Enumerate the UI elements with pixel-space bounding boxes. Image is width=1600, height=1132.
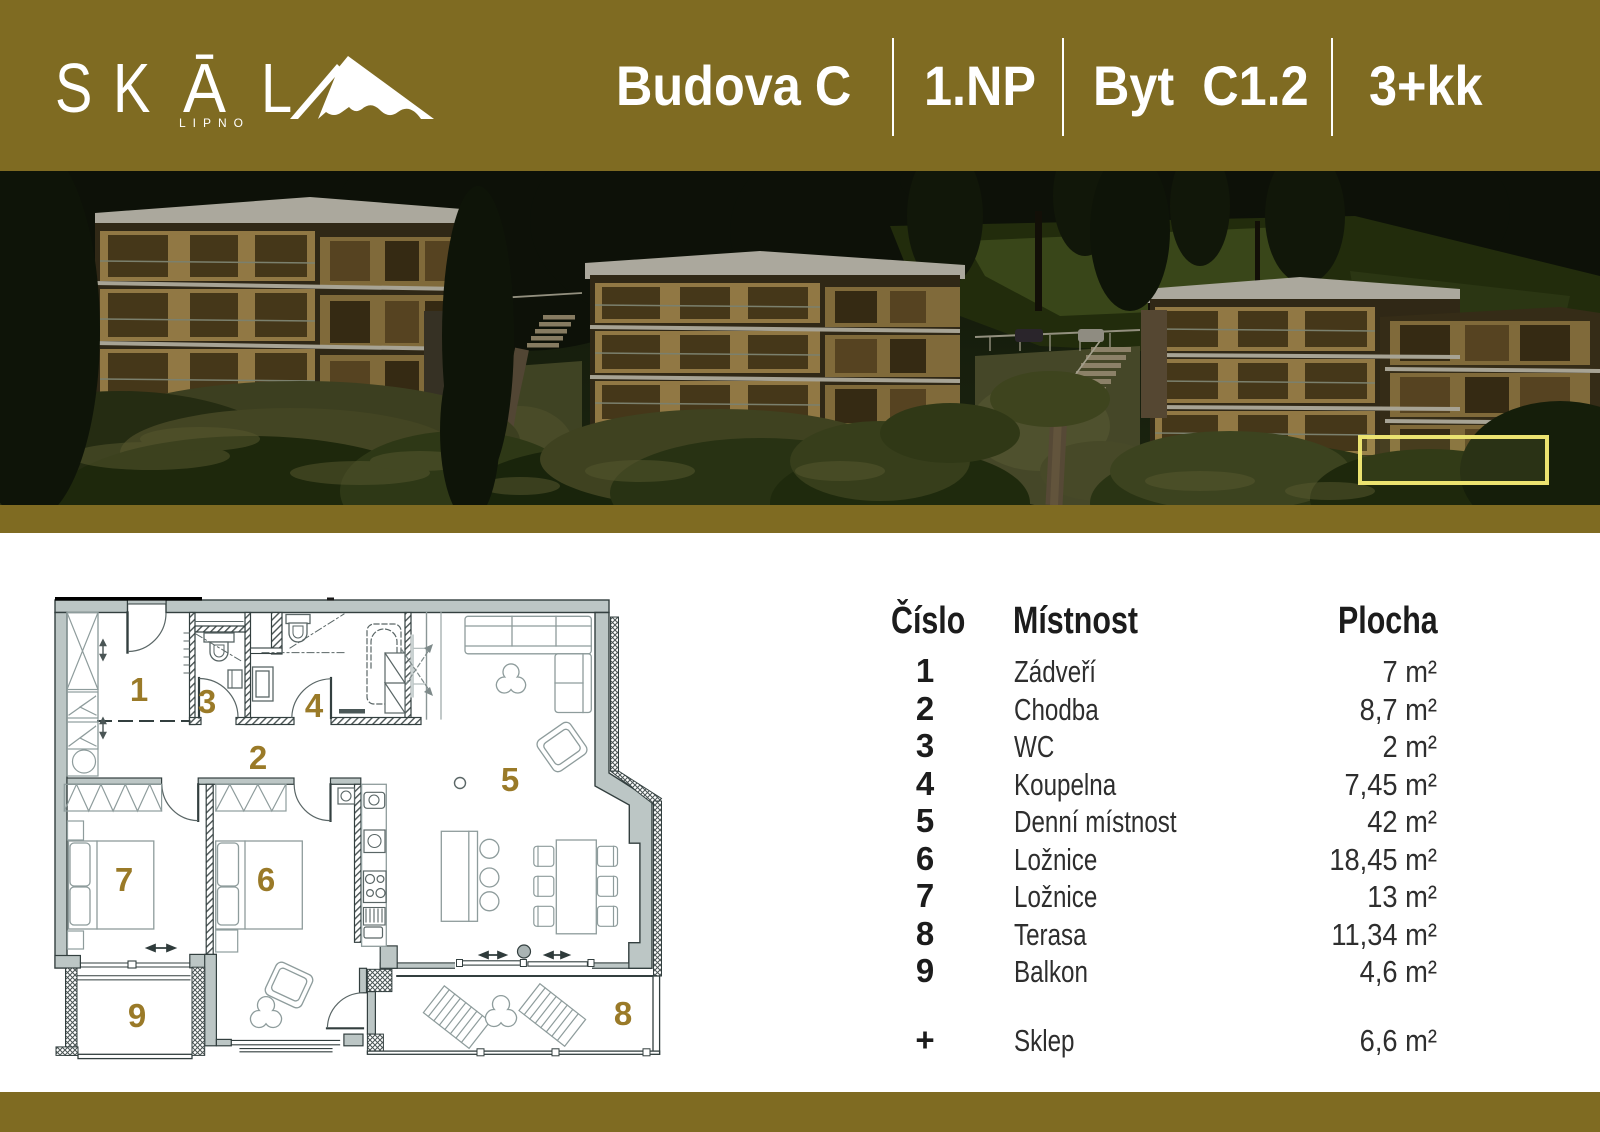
svg-text:1: 1 — [130, 671, 148, 708]
svg-text:8: 8 — [614, 995, 632, 1032]
svg-text:3: 3 — [198, 683, 216, 720]
svg-text:9: 9 — [128, 997, 146, 1034]
svg-text:4: 4 — [305, 687, 324, 724]
svg-text:5: 5 — [501, 761, 519, 798]
svg-text:2: 2 — [249, 739, 267, 776]
svg-text:7: 7 — [115, 861, 133, 898]
svg-text:6: 6 — [257, 861, 275, 898]
